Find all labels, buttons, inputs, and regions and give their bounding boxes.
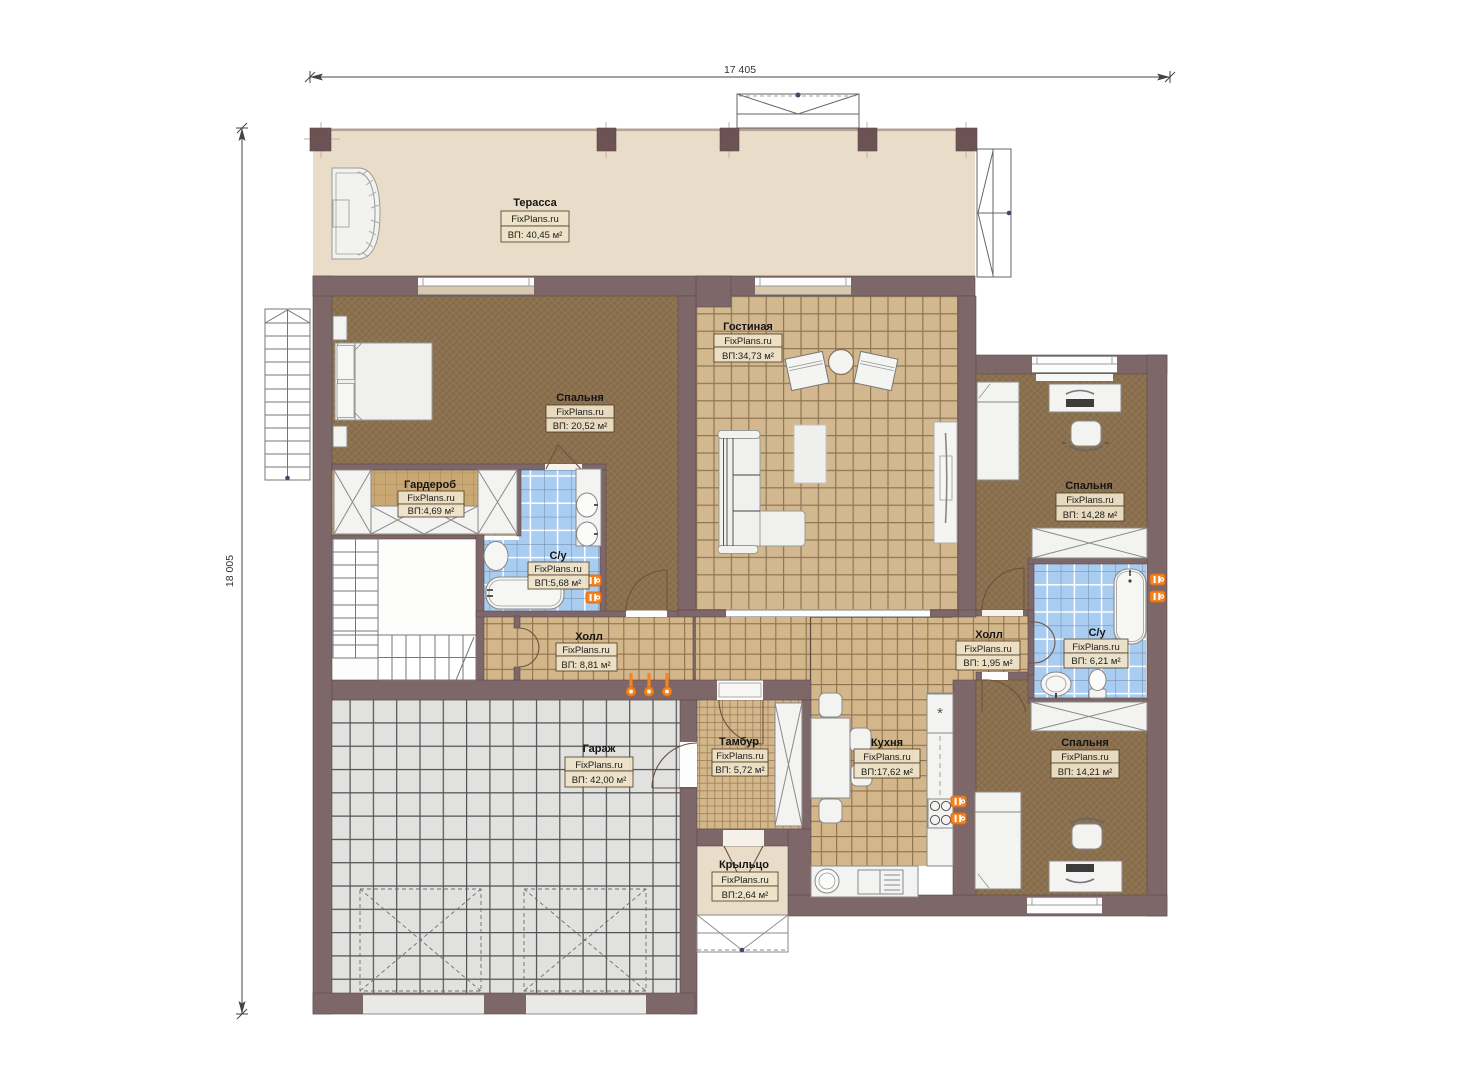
svg-text:FixPlans.ru: FixPlans.ru [1072, 642, 1120, 653]
svg-text:ВП:17,62 м²: ВП:17,62 м² [861, 767, 913, 778]
svg-text:ВП: 14,21 м²: ВП: 14,21 м² [1058, 767, 1113, 778]
svg-text:С/у: С/у [549, 550, 567, 562]
svg-text:FixPlans.ru: FixPlans.ru [863, 752, 911, 763]
svg-text:Холл: Холл [575, 631, 603, 643]
svg-text:17 405: 17 405 [724, 64, 756, 76]
svg-text:Гардероб: Гардероб [404, 479, 456, 491]
svg-text:ВП: 1,95 м²: ВП: 1,95 м² [963, 658, 1012, 669]
svg-text:FixPlans.ru: FixPlans.ru [556, 407, 604, 418]
svg-text:Кухня: Кухня [871, 737, 903, 749]
svg-text:Спальня: Спальня [1061, 737, 1109, 749]
svg-text:Крыльцо: Крыльцо [719, 859, 769, 871]
svg-text:С/у: С/у [1088, 627, 1106, 639]
svg-text:Спальня: Спальня [556, 392, 604, 404]
svg-text:Гараж: Гараж [583, 743, 616, 755]
svg-text:ВП: 20,52 м²: ВП: 20,52 м² [553, 421, 608, 432]
svg-text:Холл: Холл [975, 629, 1003, 641]
svg-text:FixPlans.ru: FixPlans.ru [511, 214, 559, 225]
svg-text:Терасса: Терасса [513, 197, 557, 209]
svg-text:FixPlans.ru: FixPlans.ru [1066, 495, 1114, 506]
svg-text:FixPlans.ru: FixPlans.ru [724, 336, 772, 347]
svg-text:ВП: 40,45 м²: ВП: 40,45 м² [508, 230, 563, 241]
svg-text:Гостиная: Гостиная [723, 321, 773, 333]
svg-text:ВП:5,68 м²: ВП:5,68 м² [535, 578, 582, 589]
svg-text:ВП:4,69 м²: ВП:4,69 м² [408, 506, 455, 517]
svg-text:FixPlans.ru: FixPlans.ru [562, 645, 610, 656]
svg-text:FixPlans.ru: FixPlans.ru [716, 751, 764, 762]
svg-text:FixPlans.ru: FixPlans.ru [407, 493, 455, 504]
svg-text:FixPlans.ru: FixPlans.ru [575, 760, 623, 771]
svg-text:FixPlans.ru: FixPlans.ru [964, 644, 1012, 655]
svg-text:ВП: 8,81 м²: ВП: 8,81 м² [561, 660, 610, 671]
svg-text:18 005: 18 005 [224, 555, 236, 587]
svg-text:ВП: 42,00 м²: ВП: 42,00 м² [572, 775, 627, 786]
svg-text:FixPlans.ru: FixPlans.ru [721, 875, 769, 886]
svg-text:Спальня: Спальня [1065, 480, 1113, 492]
svg-text:ВП:34,73 м²: ВП:34,73 м² [722, 351, 774, 362]
svg-text:*: * [937, 705, 943, 722]
svg-text:Тамбур: Тамбур [719, 736, 759, 748]
svg-text:ВП: 6,21 м²: ВП: 6,21 м² [1071, 656, 1120, 667]
svg-text:FixPlans.ru: FixPlans.ru [1061, 752, 1109, 763]
svg-text:FixPlans.ru: FixPlans.ru [534, 564, 582, 575]
svg-text:ВП: 14,28 м²: ВП: 14,28 м² [1063, 510, 1118, 521]
svg-text:ВП: 5,72 м²: ВП: 5,72 м² [715, 765, 764, 776]
svg-text:ВП:2,64 м²: ВП:2,64 м² [722, 890, 769, 901]
